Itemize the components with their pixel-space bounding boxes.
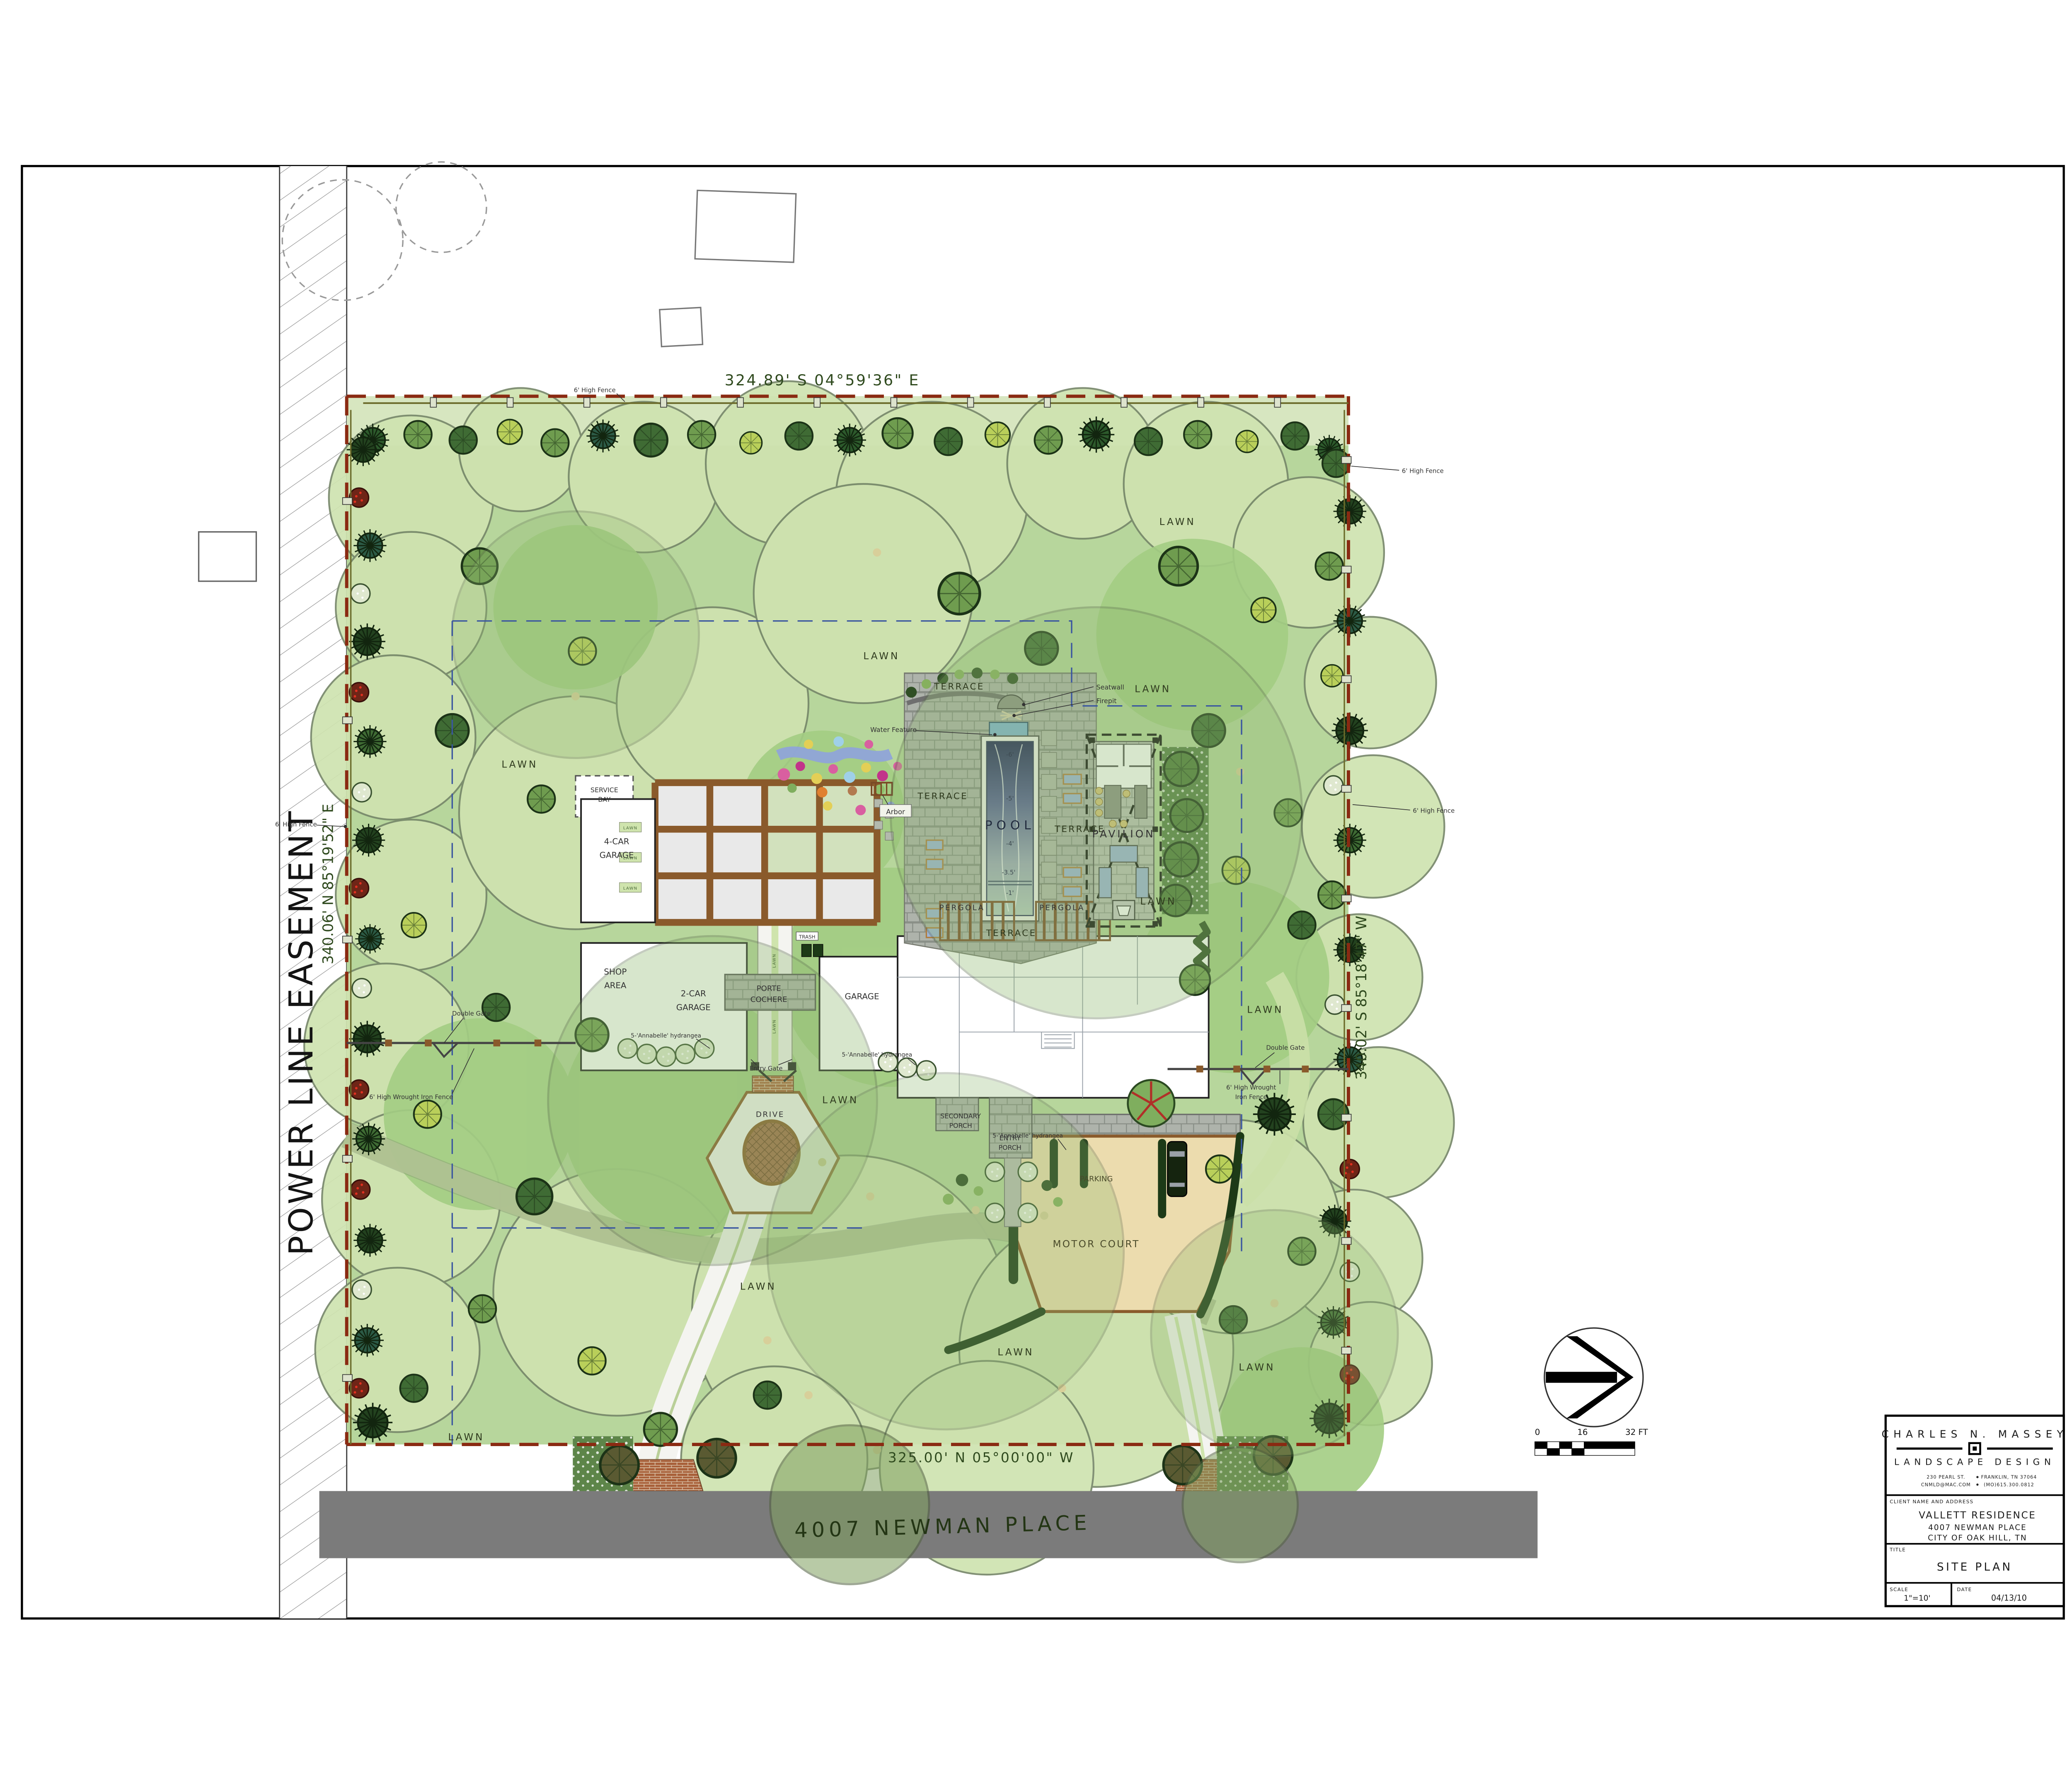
pool-depth: -5' [1006,795,1014,802]
svg-text:6' High Fence: 6' High Fence [1402,467,1444,474]
client-name: VALLETT RESIDENCE [1919,1510,2036,1521]
svg-text:Seatwall: Seatwall [1097,683,1124,691]
lawn-label: LAWN [997,1347,1034,1358]
svg-text:Double Gate: Double Gate [1266,1044,1305,1052]
client-label: CLIENT NAME AND ADDRESS [1890,1499,1973,1505]
pool-depth: -1' [1006,889,1014,897]
pool-depth: -6' [1006,751,1014,758]
firm-name: CHARLES N. MASSEY [1882,1428,2068,1440]
terrace-label: TERRACE [917,791,968,802]
sheet-title: SITE PLAN [1937,1560,2013,1573]
lawn-label: LAWN [1140,896,1176,907]
trash-annotation: TRASH [796,932,818,940]
firm-contact: CNMLD@MAC.COM [1921,1482,1971,1488]
pergola-label: PERGOLA [939,903,985,912]
title-block: CHARLES N. MASSEY LANDSCAPE DESIGN 230 P… [1882,1416,2068,1606]
lawn-label: LAWN [740,1281,777,1292]
pool-depth: -3.5' [1002,868,1015,876]
svg-text:LAWN: LAWN [623,856,637,861]
svg-text:Double Gate: Double Gate [452,1010,491,1017]
dim-south: 325.00' N 05°00'00" W [888,1449,1075,1466]
garage-label: GARAGE [845,992,879,1001]
lawn-label: LAWN [1239,1362,1275,1373]
client-address2: CITY OF OAK HILL, TN [1928,1534,2027,1543]
lawn-label: LAWN [1159,517,1196,527]
wrought-fence-label-west: 6' High Wrought Iron Fence [369,1093,453,1101]
crape-myrtle [1128,1080,1174,1126]
svg-text:Firepit: Firepit [1097,697,1117,705]
easement-label: POWER LINE EASEMENT [282,808,320,1255]
north-arrow-icon [1544,1328,1643,1427]
svg-text:LAWN: LAWN [772,1019,777,1033]
pool-depth: -4' [1006,840,1014,847]
utility-pad [198,532,256,581]
dim-west: 340.06' N 85°19'52" E [320,804,337,964]
svg-text:LAWN: LAWN [772,953,777,968]
parked-car [1167,1142,1186,1196]
svg-text:Water Feature: Water Feature [870,726,917,733]
svg-text:5-'Annabelle' hydrangea: 5-'Annabelle' hydrangea [631,1033,701,1039]
date-label: DATE [1957,1587,1972,1592]
svg-text:6' High Fence: 6' High Fence [275,821,317,828]
firm-address: 230 PEARL ST. [1927,1475,1965,1480]
dim-north: 324.89' S 04°59'36" E [725,371,920,389]
scale-tick-16: 16 [1577,1427,1588,1437]
dim-east: 340.02' S 85°18'47" W [1353,916,1370,1080]
parking-label: PARKING [1080,1175,1113,1183]
scale-value: 1"=10' [1904,1594,1930,1603]
site-plan-drawing: 4007 NEWMAN PLACE 324.89' S 04°59'36" E [0,0,2072,1790]
svg-text:Entry Gate: Entry Gate [750,1064,783,1072]
pavilion-label: PAVILION [1092,828,1155,840]
lawn-label: LAWN [822,1095,859,1106]
site-plan-sheet: 4007 NEWMAN PLACE 324.89' S 04°59'36" E [0,0,2072,1790]
firm-contact2: (MO)615.300.0812 [1984,1482,2034,1488]
lawn-label: LAWN [1247,1004,1283,1015]
motor-court-label: MOTOR COURT [1053,1239,1140,1250]
firm-address2: FRANKLIN, TN 37064 [1981,1475,2037,1480]
svg-text:5-'Annabelle' hydrangea: 5-'Annabelle' hydrangea [992,1132,1063,1139]
drive-label: DRIVE [756,1110,784,1119]
pergola-label: PERGOLA [1039,903,1085,912]
lawn-label: LAWN [863,651,900,662]
lawn-label: LAWN [501,759,538,770]
title-label: TITLE [1889,1547,1906,1553]
svg-text:TRASH: TRASH [799,934,816,940]
scale-tick-0: 0 [1535,1427,1540,1437]
scale-label: SCALE [1890,1587,1908,1592]
terrace-label: TERRACE [986,928,1037,939]
lawn-label: LAWN [448,1432,484,1443]
client-address1: 4007 NEWMAN PLACE [1928,1524,2027,1532]
scale-tick-32: 32 FT [1625,1427,1648,1437]
neighbor-structures [282,162,796,347]
svg-text:6' High Fence: 6' High Fence [574,386,616,394]
four-car-garage [581,799,655,923]
blue-drift [778,752,891,758]
svg-text:6' High Fence: 6' High Fence [1413,807,1455,815]
svg-text:LAWN: LAWN [623,886,637,891]
pool-label: POOL [985,818,1035,832]
firm-tagline: LANDSCAPE DESIGN [1894,1457,2055,1468]
terrace-label: TERRACE [934,682,985,692]
svg-text:LAWN: LAWN [623,826,637,830]
lawn-label: LAWN [1135,684,1171,695]
svg-text:Arbor: Arbor [886,808,905,816]
date-value: 04/13/10 [1991,1593,2027,1603]
scale-bar: 0 16 32 FT [1535,1427,1648,1456]
svg-text:5-'Annabelle' hydrangea: 5-'Annabelle' hydrangea [842,1052,913,1058]
